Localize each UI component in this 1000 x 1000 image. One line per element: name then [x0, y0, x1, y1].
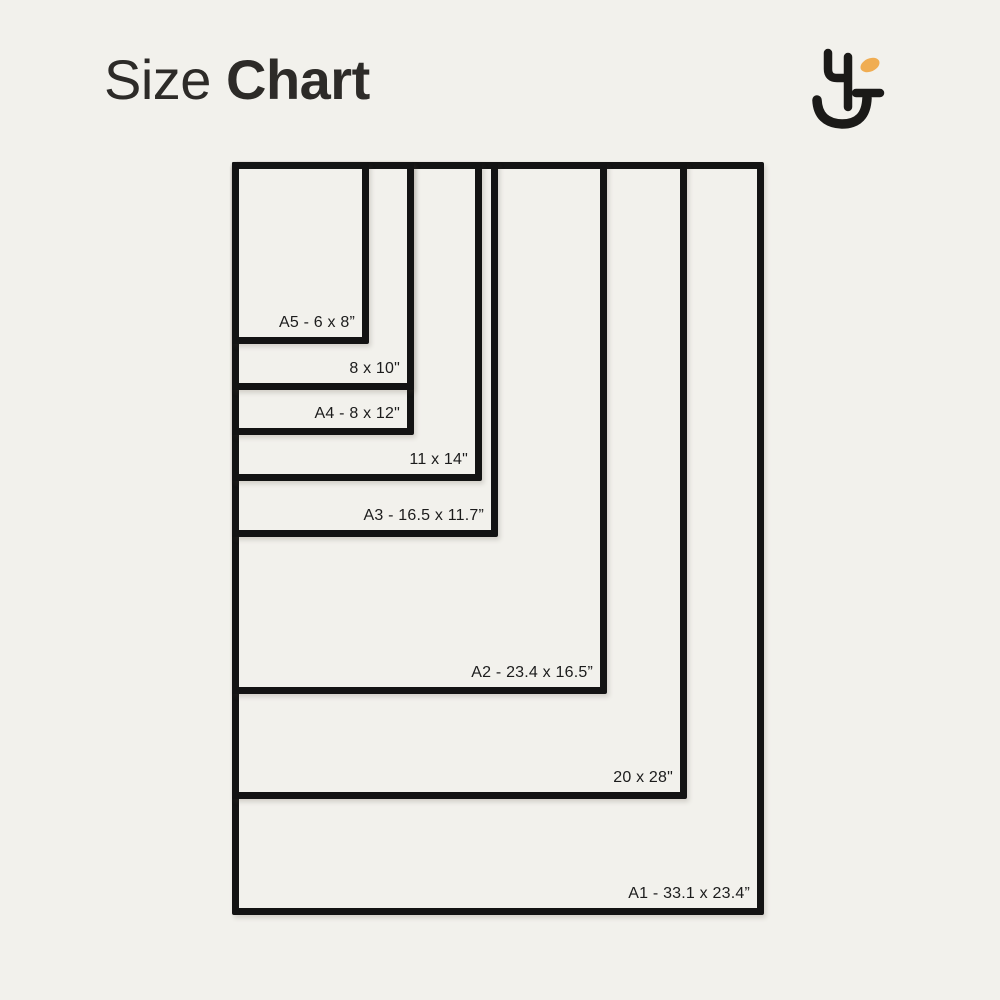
size-label-a2: A2 - 23.4 x 16.5” [471, 663, 593, 683]
size-chart-diagram: A1 - 33.1 x 23.4”20 x 28"A2 - 23.4 x 16.… [0, 0, 1000, 1000]
size-label-a1: A1 - 33.1 x 23.4” [628, 884, 750, 904]
size-label-8x10: 8 x 10" [349, 359, 400, 379]
size-label-a5: A5 - 6 x 8” [279, 313, 355, 333]
size-rect-a5: A5 - 6 x 8” [232, 162, 369, 344]
size-chart-page: Size Chart A1 - 33.1 x 23.4”20 x 28"A2 -… [0, 0, 1000, 1000]
size-label-a4: A4 - 8 x 12" [315, 404, 400, 424]
size-label-11x14: 11 x 14" [409, 450, 468, 470]
size-label-a3: A3 - 16.5 x 11.7” [363, 506, 484, 526]
size-label-20x28: 20 x 28" [613, 768, 673, 788]
